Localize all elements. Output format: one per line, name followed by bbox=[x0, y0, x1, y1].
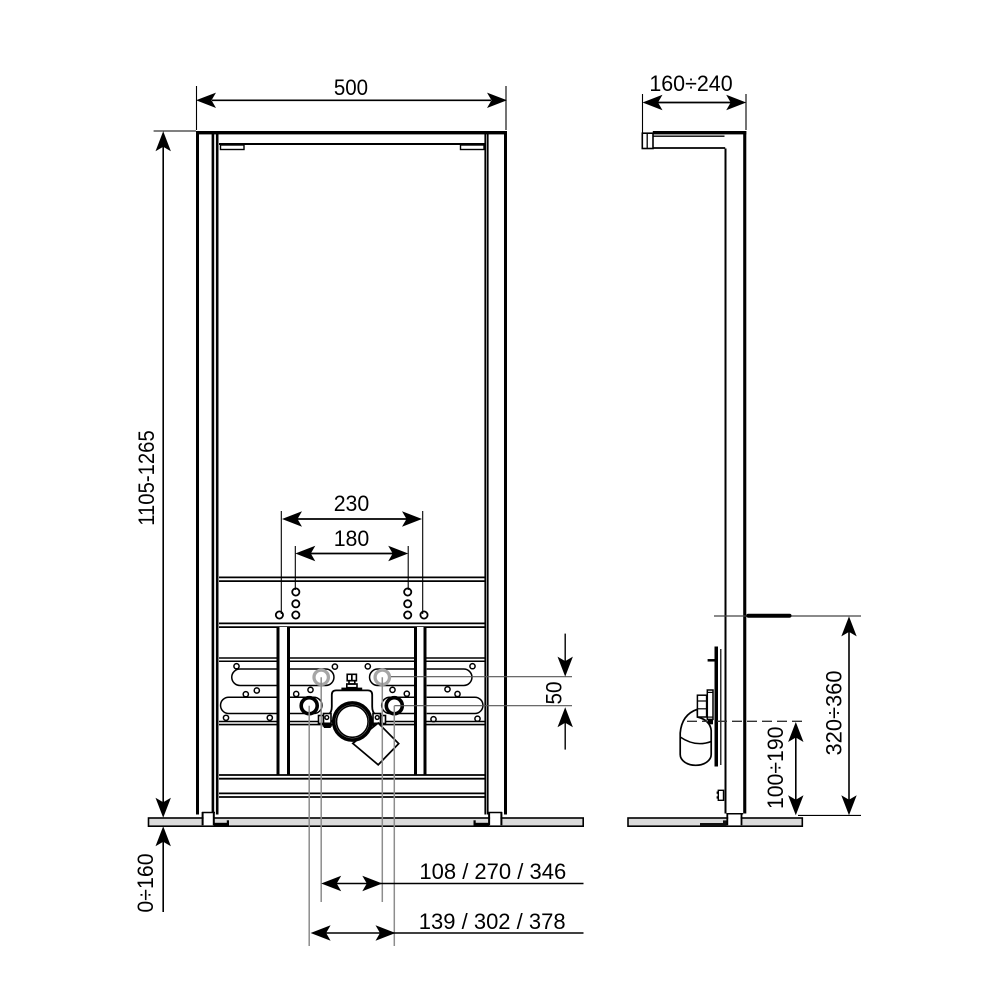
svg-text:1105-1265: 1105-1265 bbox=[134, 430, 159, 526]
svg-text:180: 180 bbox=[334, 526, 370, 551]
svg-text:500: 500 bbox=[334, 75, 368, 100]
svg-text:320÷360: 320÷360 bbox=[821, 671, 846, 756]
svg-text:108 / 270 / 346: 108 / 270 / 346 bbox=[419, 859, 566, 884]
svg-text:50: 50 bbox=[541, 681, 566, 704]
svg-text:230: 230 bbox=[334, 491, 370, 516]
svg-text:139 / 302 / 378: 139 / 302 / 378 bbox=[419, 909, 566, 934]
svg-text:160÷240: 160÷240 bbox=[649, 71, 732, 96]
svg-text:0÷160: 0÷160 bbox=[133, 853, 158, 912]
svg-text:100÷190: 100÷190 bbox=[763, 727, 788, 810]
